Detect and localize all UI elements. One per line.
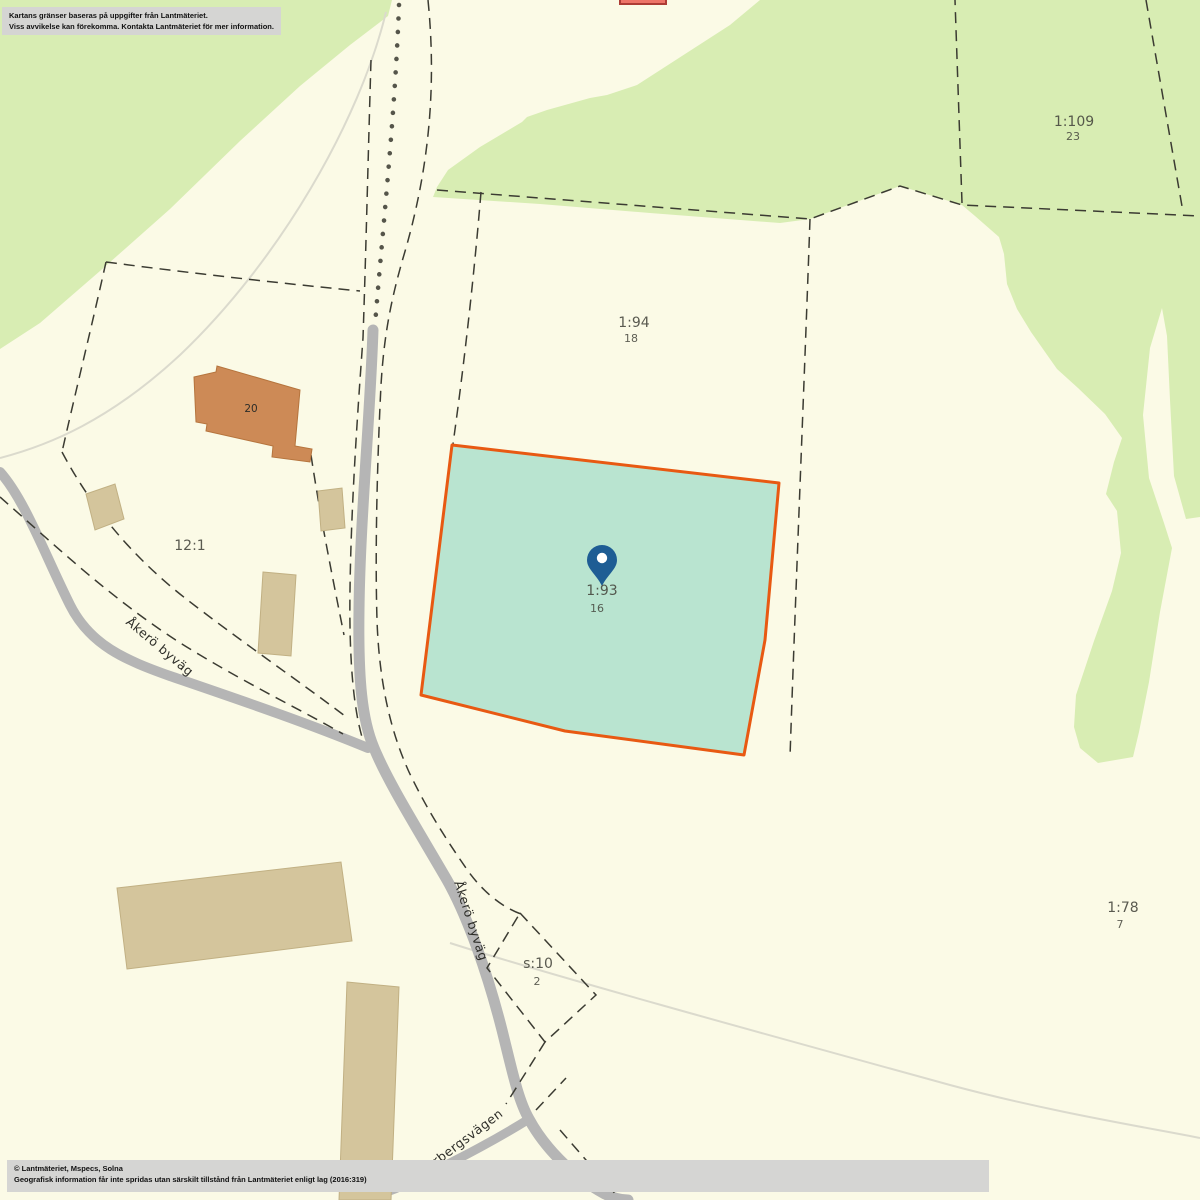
parcel-sublabel-194: 18 [624, 332, 638, 345]
highlighted-parcel[interactable] [421, 445, 779, 755]
parcel-label-121: 12:1 [174, 538, 205, 554]
map-canvas[interactable]: 1:109 23 1:94 18 12:1 s:10 2 1:78 7 20 Å… [0, 0, 1200, 1200]
building-small-2 [318, 488, 345, 531]
building-red-top [620, 0, 666, 4]
disclaimer-banner: Kartans gränser baseras på uppgifter frå… [2, 7, 281, 35]
map-image: 1:109 23 1:94 18 12:1 s:10 2 1:78 7 20 Å… [0, 0, 1200, 1200]
parcel-sublabel-1109: 23 [1066, 130, 1080, 143]
parcel-sublabel-193: 16 [590, 602, 604, 615]
attribution-line-2: Geografisk information får inte spridas … [14, 1174, 982, 1185]
attribution-banner: © Lantmäteriet, Mspecs, Solna Geografisk… [7, 1160, 989, 1192]
parcel-label-1109: 1:109 [1054, 114, 1094, 130]
parcel-label-s10: s:10 [523, 956, 553, 972]
building-small-3 [258, 572, 296, 656]
parcel-label-194: 1:94 [618, 315, 650, 331]
parcel-sublabel-178: 7 [1117, 918, 1124, 931]
attribution-line-1: © Lantmäteriet, Mspecs, Solna [14, 1163, 982, 1174]
disclaimer-line-1: Kartans gränser baseras på uppgifter frå… [9, 10, 274, 21]
disclaimer-line-2: Viss avvikelse kan förekomma. Kontakta L… [9, 21, 274, 32]
parcel-label-178: 1:78 [1107, 900, 1138, 916]
building-20-label: 20 [244, 403, 257, 415]
parcel-sublabel-s10: 2 [534, 975, 541, 988]
location-pin-hole [597, 553, 607, 563]
parcel-label-193: 1:93 [586, 583, 617, 599]
